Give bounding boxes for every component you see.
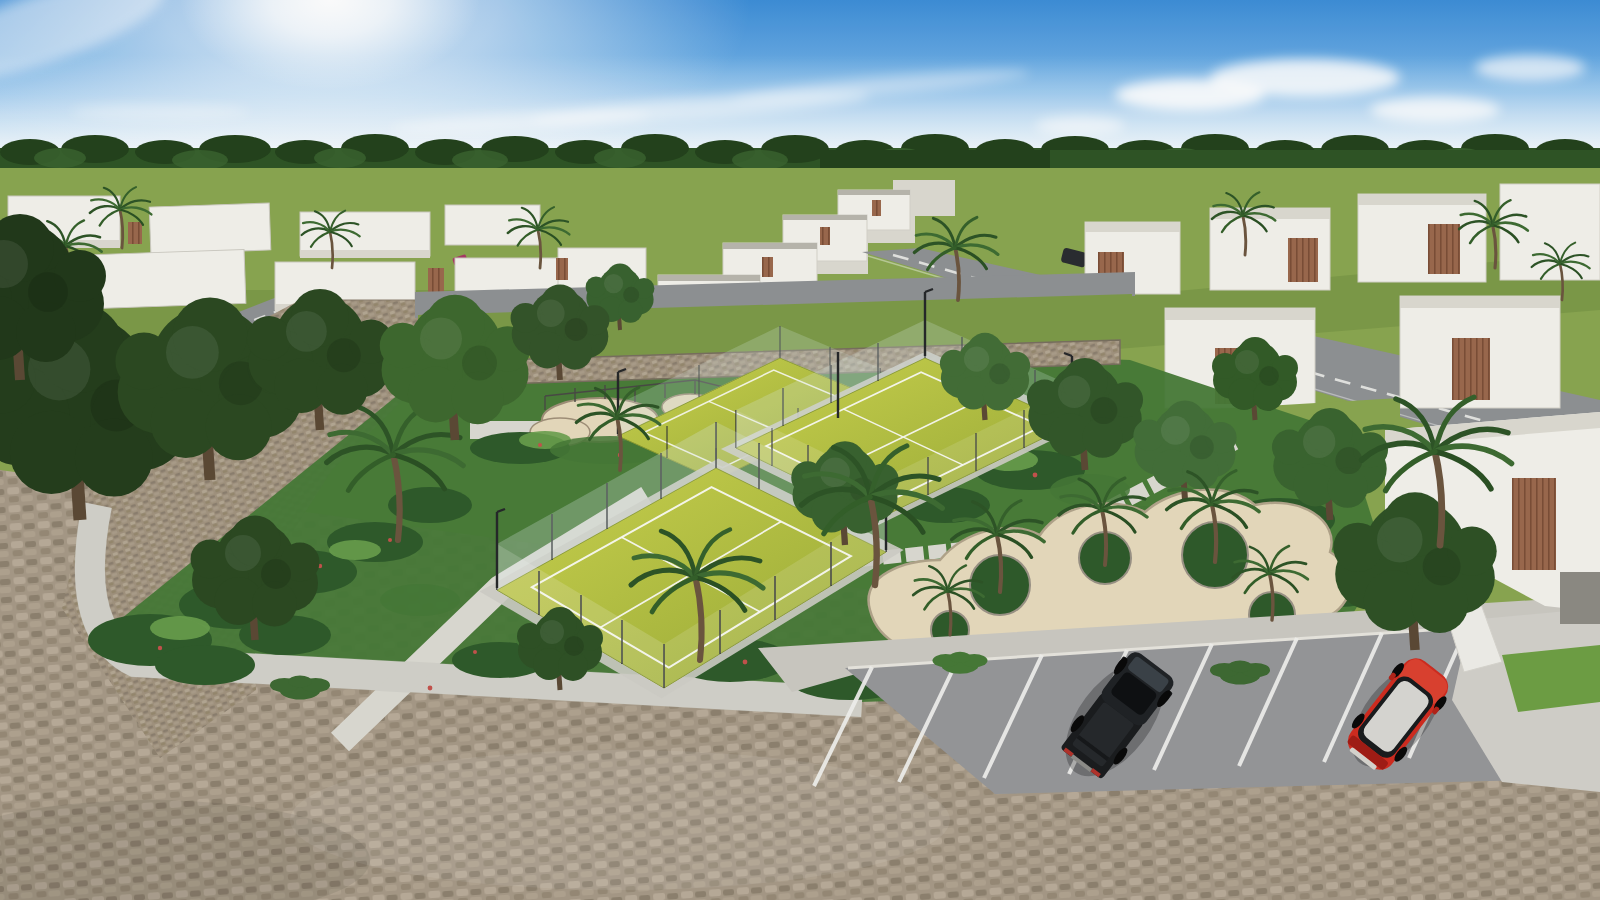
scene: [0, 0, 1600, 900]
vignette: [0, 0, 1600, 900]
render-canvas: [0, 0, 1600, 900]
